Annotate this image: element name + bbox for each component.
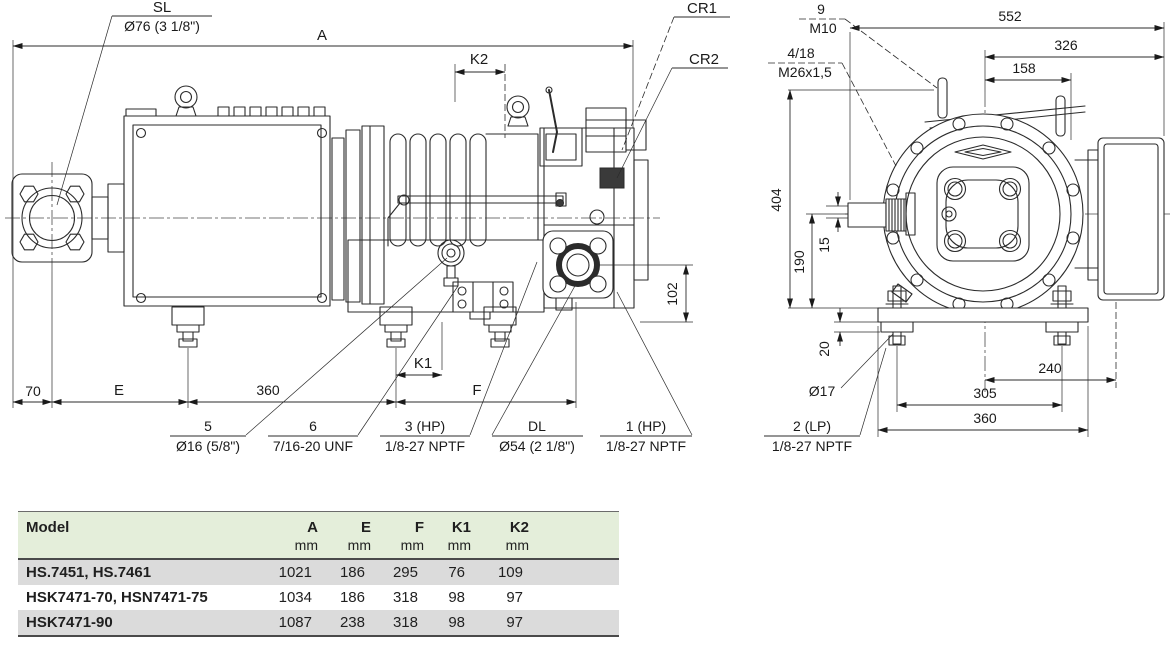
- shutoff-lever: [549, 90, 557, 152]
- dim-label-f: F: [472, 382, 481, 399]
- mid-section: [332, 126, 566, 319]
- port-1hp-size: 1/8-27 NPTF: [606, 438, 686, 454]
- dim-label-552: 552: [998, 8, 1022, 24]
- cr-valve-body: [586, 108, 626, 152]
- port-5-size: Ø16 (5/8"): [176, 438, 240, 454]
- port-m26-code: 4/18: [787, 45, 814, 61]
- table-row: HSK7471-90 1087 238 318 98 97: [18, 610, 619, 636]
- eyebolt-icon: [507, 96, 529, 126]
- value-a: 1021: [263, 559, 318, 585]
- port-2lp-code: 2 (LP): [793, 418, 831, 434]
- stud-pin: [1056, 96, 1065, 136]
- value-f: 318: [371, 610, 424, 636]
- dim-label-305: 305: [973, 385, 997, 401]
- side-view: [5, 86, 660, 347]
- value-k2: 109: [471, 559, 529, 585]
- value-e: 186: [318, 559, 371, 585]
- dim-label-360-end: 360: [973, 410, 997, 426]
- col-header-k2: K2: [471, 512, 529, 538]
- spacer-cell: [529, 610, 619, 636]
- label-cr2: CR2: [689, 51, 719, 68]
- unit-a: mm: [263, 537, 318, 559]
- port-6-code: 6: [309, 418, 317, 434]
- value-a: 1087: [263, 610, 318, 636]
- motor-housing: [124, 86, 330, 306]
- port-m10-code: 9: [817, 1, 825, 17]
- mounting-foot: [484, 307, 516, 347]
- spacer-cell: [529, 512, 619, 538]
- port-1hp-code: 1 (HP): [626, 418, 666, 434]
- foot-pad: [1046, 322, 1078, 345]
- col-header-e: E: [318, 512, 371, 538]
- col-header-k1: K1: [424, 512, 471, 538]
- col-header-a: A: [263, 512, 318, 538]
- dim-label-a: A: [317, 27, 327, 44]
- value-k1: 98: [424, 610, 471, 636]
- model-dimensions-table: Model A E F K1 K2 mm mm mm mm mm HS.7451…: [18, 511, 619, 637]
- value-k1: 76: [424, 559, 471, 585]
- value-f: 295: [371, 559, 424, 585]
- value-a: 1034: [263, 585, 318, 610]
- page: A SL Ø76 (3 1/8") K2 CR1 CR2 102 70 E 36…: [0, 0, 1170, 672]
- table-header-row: Model A E F K1 K2: [18, 512, 619, 538]
- end-view: [845, 78, 1170, 392]
- mounting-foot: [172, 307, 204, 347]
- technical-drawing: A SL Ø76 (3 1/8") K2 CR1 CR2 102 70 E 36…: [0, 0, 1170, 500]
- port-3hp-code: 3 (HP): [405, 418, 445, 434]
- port-sl-code: SL: [153, 0, 171, 16]
- unit-k2: mm: [471, 537, 529, 559]
- unit-f: mm: [371, 537, 424, 559]
- unit-k1: mm: [424, 537, 471, 559]
- port-6-size: 7/16-20 UNF: [273, 438, 353, 454]
- discharge-end: [507, 87, 648, 310]
- port-sl-size: Ø76 (3 1/8"): [124, 18, 200, 34]
- table-row: HSK7471-70, HSN7471-75 1034 186 318 98 9…: [18, 585, 619, 610]
- dim-label-190: 190: [791, 250, 807, 274]
- value-f: 318: [371, 585, 424, 610]
- dim-label-158: 158: [1012, 60, 1036, 76]
- port-2lp-size: 1/8-27 NPTF: [772, 438, 852, 454]
- value-e: 238: [318, 610, 371, 636]
- value-k2: 97: [471, 610, 529, 636]
- holddown-bolt: [1051, 286, 1073, 308]
- stud-pin: [938, 78, 947, 118]
- port-5-code: 5: [204, 418, 212, 434]
- port-m10-size: M10: [809, 20, 836, 36]
- table-units-row: mm mm mm mm mm: [18, 537, 619, 559]
- units-model-cell: [18, 537, 263, 559]
- port-3hp-size: 1/8-27 NPTF: [385, 438, 465, 454]
- value-k2: 97: [471, 585, 529, 610]
- dim-label-326: 326: [1054, 37, 1078, 53]
- col-header-f: F: [371, 512, 424, 538]
- model-name: HS.7451, HS.7461: [18, 559, 263, 585]
- dim-label-240: 240: [1038, 360, 1062, 376]
- table-row: HS.7451, HS.7461 1021 186 295 76 109: [18, 559, 619, 585]
- dim-label-20: 20: [816, 341, 832, 357]
- dimension-table: Model A E F K1 K2 mm mm mm mm mm HS.7451…: [18, 511, 619, 637]
- port-dl-code: DL: [528, 418, 546, 434]
- dim-label-70: 70: [25, 383, 41, 399]
- col-header-model: Model: [18, 512, 263, 538]
- spacer-cell: [529, 559, 619, 585]
- dim-label-360: 360: [256, 382, 280, 398]
- dim-label-k2: K2: [470, 51, 488, 68]
- port-m26-size: M26x1,5: [778, 64, 832, 80]
- spacer-cell: [529, 585, 619, 610]
- unit-e: mm: [318, 537, 371, 559]
- dim-label-102: 102: [664, 282, 680, 306]
- side-view-dimensions: A SL Ø76 (3 1/8") K2 CR1 CR2 102 70 E 36…: [13, 0, 730, 454]
- port-dl-size: Ø54 (2 1/8"): [499, 438, 575, 454]
- dim-label-15: 15: [816, 237, 832, 253]
- label-cr1: CR1: [687, 0, 717, 17]
- housing-circle: [883, 114, 1083, 314]
- port-callout-2lp: 2 (LP) 1/8-27 NPTF: [764, 348, 886, 454]
- model-name: HSK7471-90: [18, 610, 263, 636]
- terminal-box: [1075, 138, 1164, 300]
- dim-label-e: E: [114, 382, 124, 399]
- value-k1: 98: [424, 585, 471, 610]
- port-callout-1hp: 1 (HP) 1/8-27 NPTF: [600, 292, 692, 454]
- dim-label-o17: Ø17: [809, 383, 836, 399]
- value-e: 186: [318, 585, 371, 610]
- dim-label-404: 404: [768, 188, 784, 212]
- eyebolt-icon: [175, 86, 197, 116]
- model-name: HSK7471-70, HSN7471-75: [18, 585, 263, 610]
- dim-label-k1: K1: [414, 355, 432, 372]
- spacer-cell: [529, 537, 619, 559]
- shaft: [848, 193, 915, 235]
